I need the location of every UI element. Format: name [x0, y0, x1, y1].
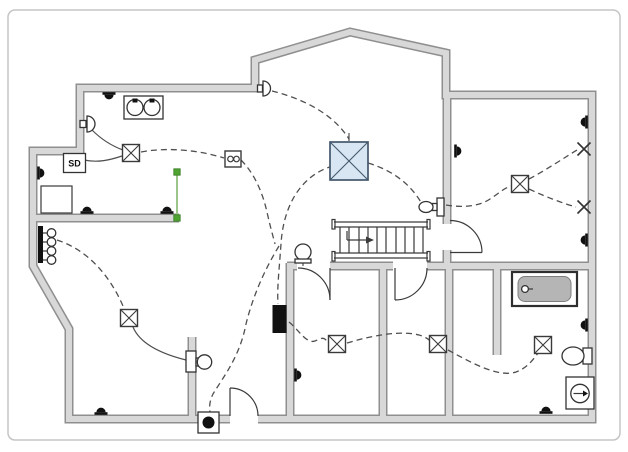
exhaust-fan[interactable] — [566, 377, 594, 409]
selection-handle-top[interactable] — [174, 169, 180, 175]
toilet[interactable] — [562, 347, 592, 365]
floorplan-canvas: SD — [0, 0, 628, 452]
junction-box-icon[interactable] — [329, 336, 346, 353]
junction-box-icon[interactable] — [123, 145, 140, 162]
electrical-panel[interactable] — [273, 305, 287, 333]
double-sink-unit[interactable] — [124, 96, 163, 119]
hall-wall-light[interactable] — [295, 244, 311, 263]
duplex-outlet-box[interactable] — [225, 151, 241, 167]
junction-box-icon[interactable] — [512, 176, 529, 193]
floorplan-page: SD — [0, 0, 628, 452]
selection-handle-bottom[interactable] — [174, 215, 180, 221]
bathtub[interactable] — [512, 272, 577, 306]
doorbell-box[interactable] — [198, 412, 219, 433]
canvas-frame — [8, 10, 620, 440]
junction-box-icon[interactable] — [430, 336, 447, 353]
junction-box-icon[interactable] — [535, 337, 552, 354]
junction-box-icon[interactable] — [121, 310, 138, 327]
ceiling-fan-box[interactable] — [330, 142, 368, 180]
smoke-detector-label: SD — [68, 159, 81, 169]
smoke-detector[interactable]: SD — [64, 154, 86, 173]
